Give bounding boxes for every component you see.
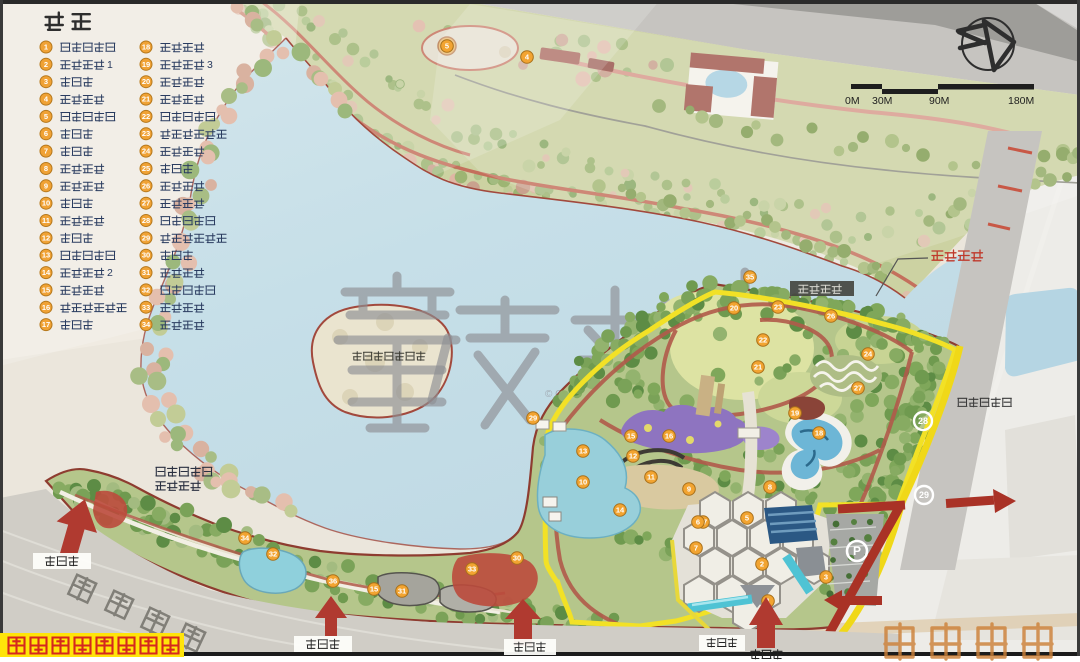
svg-text:90M: 90M <box>929 95 949 107</box>
svg-text:7: 7 <box>44 147 48 156</box>
svg-text:26: 26 <box>142 181 150 190</box>
svg-text:26: 26 <box>827 312 835 321</box>
svg-text:10: 10 <box>579 478 587 487</box>
svg-text:34: 34 <box>241 534 250 543</box>
svg-text:8: 8 <box>768 483 772 492</box>
svg-text:33: 33 <box>468 565 476 574</box>
svg-text:19: 19 <box>142 60 150 69</box>
svg-text:11: 11 <box>647 473 655 482</box>
svg-text:33: 33 <box>142 303 150 312</box>
svg-text:20: 20 <box>142 77 150 86</box>
svg-text:34: 34 <box>142 320 151 329</box>
svg-text:2: 2 <box>44 60 48 69</box>
svg-text:8: 8 <box>44 164 48 173</box>
svg-text:2: 2 <box>760 560 764 569</box>
svg-text:7: 7 <box>694 544 698 553</box>
svg-text:15: 15 <box>370 585 378 594</box>
svg-text:27: 27 <box>854 384 862 393</box>
svg-text:22: 22 <box>759 336 767 345</box>
svg-text:21: 21 <box>754 363 762 372</box>
svg-text:27: 27 <box>142 199 150 208</box>
svg-text:19: 19 <box>791 409 799 418</box>
svg-text:3: 3 <box>44 77 48 86</box>
svg-text:23: 23 <box>142 129 150 138</box>
svg-text:0M: 0M <box>845 95 860 107</box>
svg-text:5: 5 <box>44 112 48 121</box>
svg-text:31: 31 <box>398 587 406 596</box>
svg-text:13: 13 <box>42 251 50 260</box>
svg-text:15: 15 <box>627 432 635 441</box>
svg-text:2: 2 <box>107 267 113 279</box>
svg-text:15: 15 <box>42 285 50 294</box>
svg-text:16: 16 <box>665 432 673 441</box>
svg-text:30M: 30M <box>872 95 892 107</box>
svg-text:12: 12 <box>42 233 50 242</box>
svg-text:29: 29 <box>529 414 537 423</box>
svg-text:17: 17 <box>42 320 50 329</box>
svg-text:1: 1 <box>107 59 113 71</box>
svg-text:29: 29 <box>919 490 929 500</box>
svg-text:30: 30 <box>513 554 521 563</box>
svg-text:5: 5 <box>745 514 749 523</box>
svg-text:21: 21 <box>142 95 150 104</box>
svg-text:25: 25 <box>142 164 150 173</box>
svg-text:14: 14 <box>616 506 625 515</box>
svg-text:3: 3 <box>207 59 213 71</box>
svg-text:30: 30 <box>142 251 150 260</box>
svg-text:14: 14 <box>42 268 51 277</box>
svg-text:32: 32 <box>142 285 150 294</box>
svg-text:32: 32 <box>269 550 277 559</box>
svg-text:36: 36 <box>329 577 337 586</box>
svg-text:10: 10 <box>42 199 50 208</box>
svg-text:P: P <box>853 544 861 558</box>
svg-text:24: 24 <box>142 147 151 156</box>
svg-text:1: 1 <box>44 43 48 52</box>
svg-text:11: 11 <box>42 216 50 225</box>
svg-text:29: 29 <box>142 233 150 242</box>
svg-text:18: 18 <box>142 43 150 52</box>
svg-text:180M: 180M <box>1008 95 1034 107</box>
svg-text:6: 6 <box>696 518 700 527</box>
svg-text:35: 35 <box>746 273 754 282</box>
svg-text:16: 16 <box>42 303 50 312</box>
svg-text:6: 6 <box>44 129 48 138</box>
svg-text:3: 3 <box>824 573 828 582</box>
svg-text:9: 9 <box>687 485 691 494</box>
svg-text:18: 18 <box>815 429 823 438</box>
svg-text:13: 13 <box>579 447 587 456</box>
svg-text:20: 20 <box>730 304 738 313</box>
svg-text:22: 22 <box>142 112 150 121</box>
svg-text:5: 5 <box>445 42 449 51</box>
svg-text:28: 28 <box>142 216 150 225</box>
svg-text:28: 28 <box>918 416 928 426</box>
svg-text:23: 23 <box>774 303 782 312</box>
svg-text:12: 12 <box>629 452 637 461</box>
svg-text:24: 24 <box>864 350 873 359</box>
svg-text:9: 9 <box>44 181 48 190</box>
svg-text:31: 31 <box>142 268 150 277</box>
